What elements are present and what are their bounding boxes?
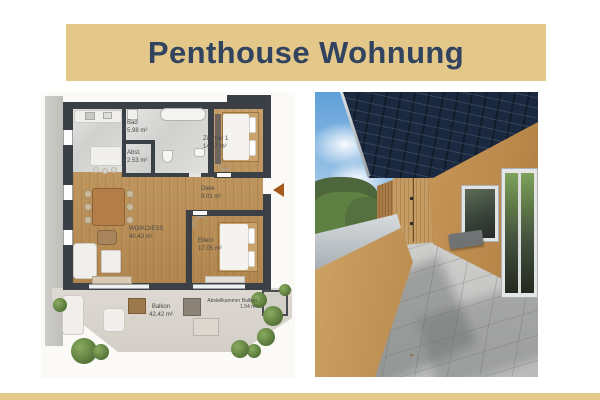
shed-hinge	[410, 222, 413, 225]
bar-stool	[111, 167, 117, 173]
dining-chair	[126, 203, 134, 211]
room-name: WO/KO/ESS	[129, 226, 163, 234]
pillow	[249, 140, 256, 156]
room-name: Eltern	[198, 238, 222, 246]
room-name: Bad	[127, 120, 147, 128]
entry-door-gap	[263, 178, 271, 194]
wall-abst-right	[151, 140, 155, 177]
stove	[85, 112, 95, 120]
room-area: 5.98 m²	[127, 128, 147, 136]
bed-eltern-duvet	[220, 224, 248, 270]
room-label-eltern: Eltern 17.05 m²	[198, 238, 222, 253]
pillow	[248, 251, 255, 267]
room-area: 2.53 m²	[127, 158, 147, 166]
toilet	[162, 150, 173, 163]
sliding-door-living	[89, 284, 149, 289]
pillow	[248, 228, 255, 244]
door-gap-zimmer1	[217, 173, 231, 177]
bench-eltern	[205, 276, 245, 283]
room-label-abstellkammer-balkon: Abstellkammer Balkon 1.54 m²	[199, 298, 257, 311]
armchair	[97, 230, 117, 245]
plant	[53, 298, 67, 312]
door-arc-eltern	[193, 216, 209, 232]
floor-plan-image: Bad 5.98 m² Abst. 2.53 m² Zimmer 1 14.57…	[41, 92, 295, 378]
balcony-lounge-chair	[103, 308, 125, 332]
room-label-diele: Diele 9.01 m²	[201, 186, 221, 201]
title-banner: Penthouse Wohnung	[66, 24, 546, 81]
room-label-bad: Bad 5.98 m²	[127, 120, 147, 135]
room-area: 40.43 m²	[129, 234, 163, 242]
kitchen-sink	[103, 112, 112, 119]
bar-stool	[93, 167, 99, 173]
room-name: Balkon	[139, 304, 183, 312]
sofa	[73, 243, 97, 279]
room-label-abst: Abst. 2.53 m²	[127, 150, 147, 165]
room-name: Diele	[201, 186, 221, 194]
room-area: 42.42 m²	[139, 312, 183, 320]
room-name: Zimmer 1	[203, 136, 228, 144]
room-area: 9.01 m²	[201, 194, 221, 202]
dining-table	[92, 188, 125, 226]
room-area: 14.57 m²	[203, 144, 228, 152]
dining-chair	[126, 216, 134, 224]
room-area: 1.54 m²	[199, 304, 257, 310]
dining-chair	[126, 190, 134, 198]
window-left-1	[63, 130, 73, 145]
bar-stool	[102, 168, 108, 174]
fallen-leaf	[410, 354, 413, 356]
plant	[93, 344, 109, 360]
dining-chair	[84, 216, 92, 224]
shed-hinge	[410, 197, 413, 200]
balcony-shelf	[193, 318, 219, 336]
tv-sideboard	[92, 276, 132, 284]
bathtub	[160, 108, 206, 121]
room-label-zimmer1: Zimmer 1 14.57 m²	[203, 136, 228, 151]
terrace-door-mullion	[518, 173, 521, 293]
entrance-arrow-icon	[273, 183, 284, 197]
potted-tree	[231, 340, 249, 358]
room-label-balkon: Balkon 42.42 m²	[139, 304, 183, 319]
plant	[257, 328, 275, 346]
door-gap-bad	[189, 173, 201, 177]
plant	[263, 306, 283, 326]
door-gap-eltern	[193, 211, 207, 215]
washer	[127, 109, 138, 120]
window-left-3	[63, 230, 73, 245]
room-area: 17.05 m²	[198, 246, 222, 254]
shed-door-seam	[413, 178, 414, 242]
wall-eltern-left	[186, 210, 192, 290]
wall-right-lower	[263, 194, 271, 290]
room-name: Abst.	[127, 150, 147, 158]
dining-chair	[84, 203, 92, 211]
kitchen-island	[90, 146, 122, 166]
wall-right-upper	[263, 102, 271, 178]
plant	[247, 344, 261, 358]
terrace-photo	[315, 92, 538, 377]
window-left-2	[63, 185, 73, 200]
sliding-door-eltern	[193, 284, 245, 289]
kitchen-counter	[74, 110, 122, 123]
footer-accent-strip	[0, 393, 600, 400]
dining-chair	[84, 190, 92, 198]
page-title: Penthouse Wohnung	[148, 35, 464, 71]
room-label-wohnen: WO/KO/ESS 40.43 m²	[129, 226, 163, 241]
coffee-table	[101, 250, 121, 273]
plant	[279, 284, 291, 296]
pillow	[249, 117, 256, 133]
